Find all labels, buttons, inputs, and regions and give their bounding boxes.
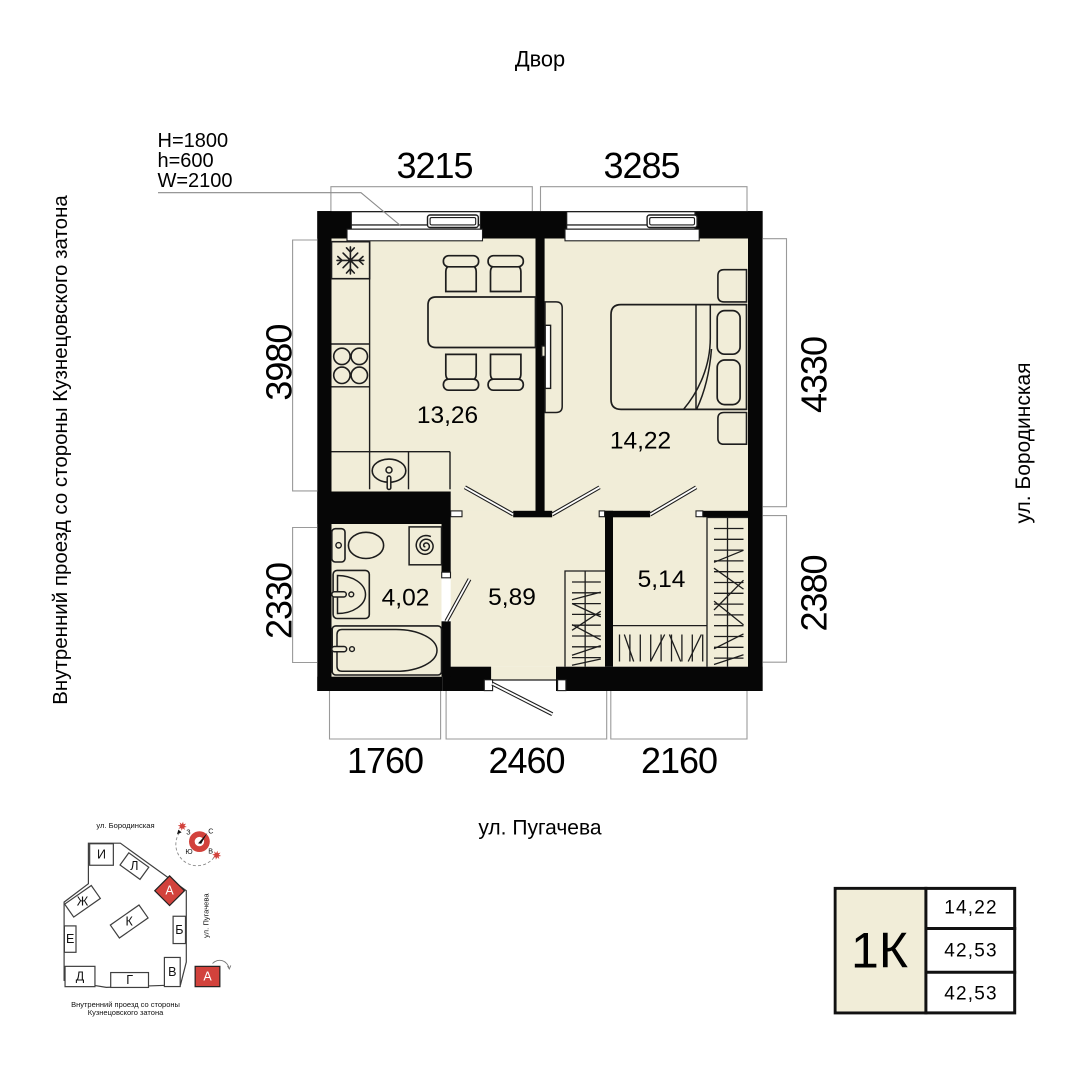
svg-text:4330: 4330 bbox=[794, 337, 835, 413]
svg-text:1К: 1К bbox=[851, 923, 908, 979]
svg-text:В: В bbox=[168, 965, 176, 979]
svg-text:2160: 2160 bbox=[641, 740, 717, 781]
svg-text:W=2100: W=2100 bbox=[158, 170, 233, 192]
svg-text:2380: 2380 bbox=[794, 555, 835, 631]
svg-text:ул. Пугачева: ул. Пугачева bbox=[478, 817, 602, 840]
svg-text:h=600: h=600 bbox=[158, 150, 214, 172]
svg-text:14,22: 14,22 bbox=[610, 428, 671, 455]
svg-text:Д: Д bbox=[76, 970, 85, 984]
svg-text:Ю: Ю bbox=[185, 847, 192, 856]
svg-text:Г: Г bbox=[126, 973, 133, 987]
svg-text:В: В bbox=[208, 846, 213, 855]
svg-text:5,14: 5,14 bbox=[638, 566, 686, 593]
svg-text:К: К bbox=[126, 915, 134, 929]
svg-text:Двор: Двор bbox=[515, 46, 565, 71]
svg-text:4,02: 4,02 bbox=[382, 585, 430, 612]
svg-text:С: С bbox=[208, 826, 213, 835]
svg-text:ул. Бородинская: ул. Бородинская bbox=[1012, 362, 1035, 523]
svg-text:42,53: 42,53 bbox=[944, 940, 998, 961]
svg-text:3285: 3285 bbox=[603, 145, 679, 186]
svg-text:И: И bbox=[97, 848, 106, 862]
svg-text:14,22: 14,22 bbox=[944, 898, 998, 919]
svg-text:5,89: 5,89 bbox=[488, 584, 536, 611]
svg-text:2330: 2330 bbox=[259, 563, 300, 639]
svg-text:13,26: 13,26 bbox=[417, 402, 478, 429]
svg-text:Е: Е bbox=[66, 932, 74, 946]
svg-text:Ж: Ж bbox=[77, 894, 89, 908]
svg-text:Внутренний проезд со стороны К: Внутренний проезд со стороны Кузнецовско… bbox=[49, 195, 72, 705]
svg-text:H=1800: H=1800 bbox=[158, 130, 229, 152]
svg-text:Л: Л bbox=[130, 859, 138, 873]
svg-text:З: З bbox=[186, 827, 190, 836]
svg-text:3980: 3980 bbox=[259, 325, 300, 401]
svg-text:ул. Пугачева: ул. Пугачева bbox=[202, 893, 211, 938]
svg-text:1760: 1760 bbox=[347, 740, 423, 781]
svg-text:2460: 2460 bbox=[488, 740, 564, 781]
svg-text:Кузнецовского затона: Кузнецовского затона bbox=[88, 1008, 164, 1017]
svg-text:3215: 3215 bbox=[396, 145, 472, 186]
svg-text:А: А bbox=[203, 970, 212, 984]
svg-text:А: А bbox=[165, 884, 174, 898]
svg-text:ул. Бородинская: ул. Бородинская bbox=[96, 821, 154, 830]
svg-text:Б: Б bbox=[175, 923, 183, 937]
svg-text:42,53: 42,53 bbox=[944, 983, 998, 1004]
